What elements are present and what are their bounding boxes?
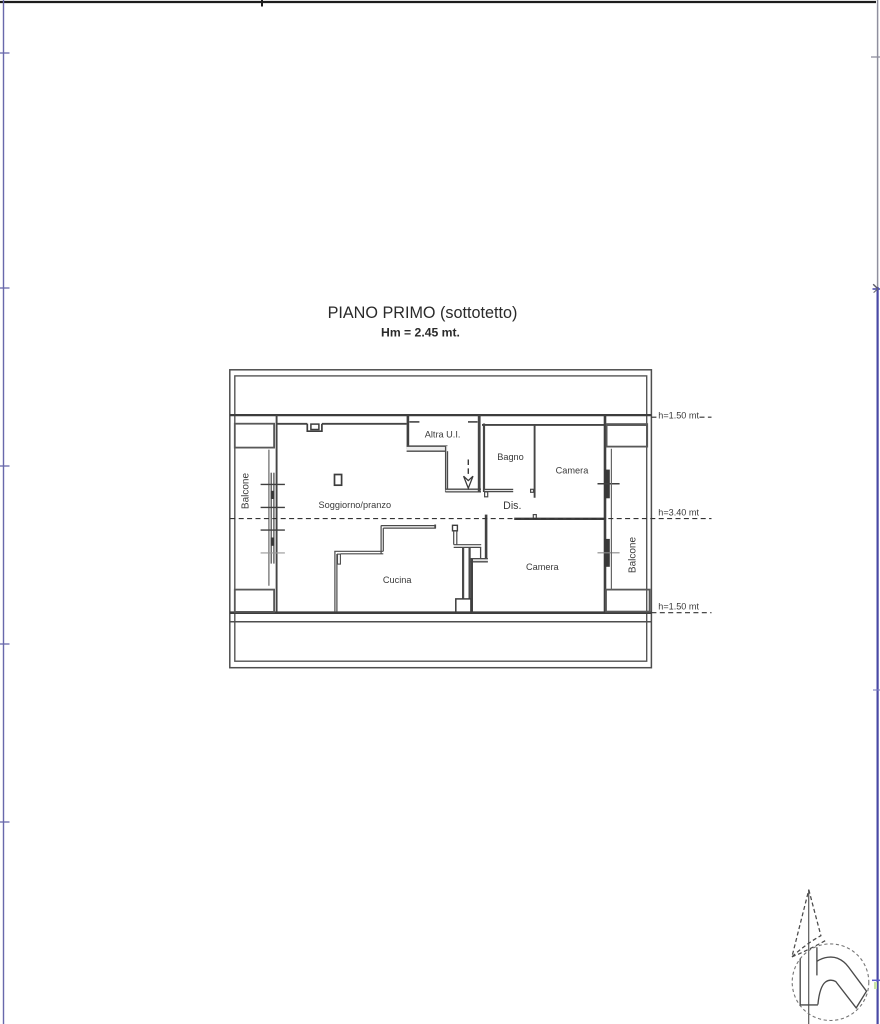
svg-text:Camera: Camera xyxy=(526,562,560,572)
svg-text:Soggiorno/pranzo: Soggiorno/pranzo xyxy=(319,500,392,510)
svg-text:Cucina: Cucina xyxy=(383,575,412,585)
svg-text:Balcone: Balcone xyxy=(628,536,639,573)
svg-text:h=3.40 mt: h=3.40 mt xyxy=(658,507,699,517)
svg-text:PIANO PRIMO (sottotetto): PIANO PRIMO (sottotetto) xyxy=(328,304,518,322)
svg-text:h=1.50 mt: h=1.50 mt xyxy=(658,410,699,420)
svg-text:Altra U.I.: Altra U.I. xyxy=(425,429,461,439)
svg-text:Hm = 2.45 mt.: Hm = 2.45 mt. xyxy=(381,326,460,340)
svg-text:h=1.50 mt: h=1.50 mt xyxy=(658,601,699,611)
svg-text:Bagno: Bagno xyxy=(497,452,524,462)
svg-text:Dis.: Dis. xyxy=(503,500,521,512)
svg-text:Camera: Camera xyxy=(556,465,590,475)
svg-text:Balcone: Balcone xyxy=(241,472,252,509)
